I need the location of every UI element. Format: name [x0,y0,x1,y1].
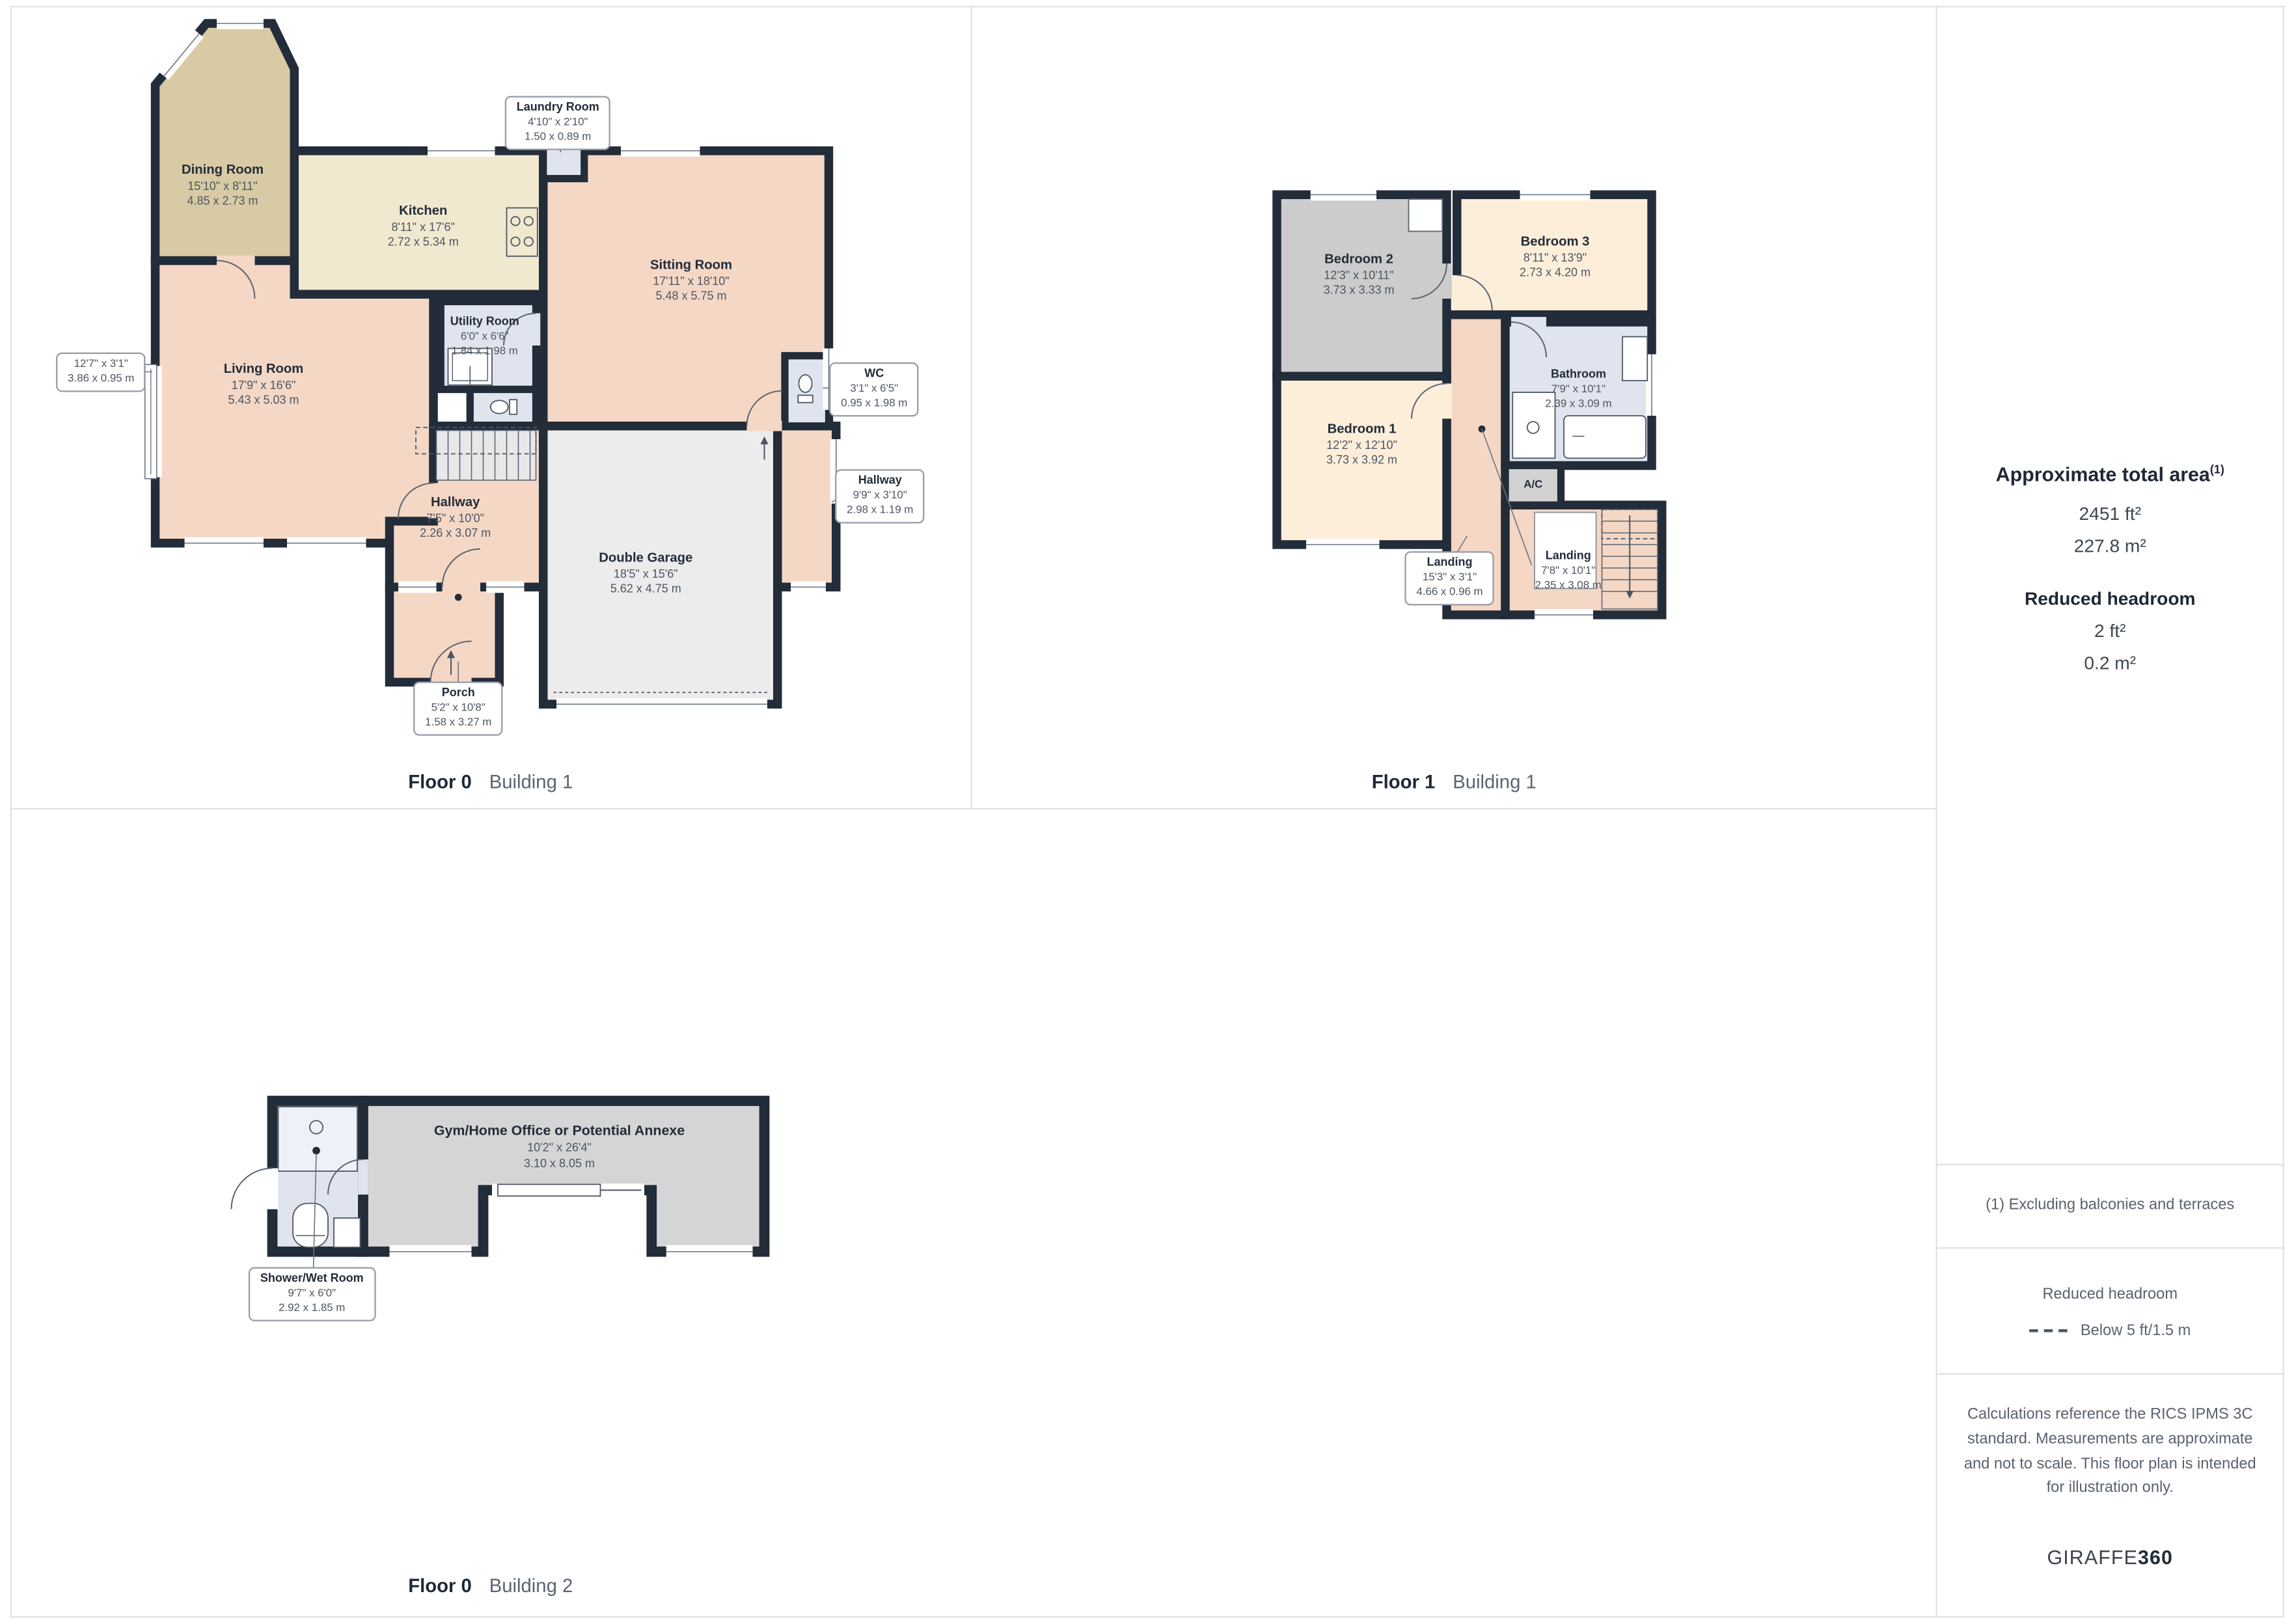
caption-floor0-building1: Floor 0Building 1 [408,771,573,793]
toilet-icon-wc [798,375,813,403]
callout-landing: Landing 15'3" x 3'1" 4.66 x 0.96 m [1404,551,1494,605]
callout-bay-dimensions: 12'7" x 3'1" 3.86 x 0.95 m [56,353,146,392]
room-label-sitting-room: Sitting Room 17'11" x 18'10" 5.48 x 5.75… [650,257,732,304]
room-label-bathroom: Bathroom 7'9" x 10'1" 2.39 x 3.09 m [1545,368,1611,411]
sliding-door-gym [492,1184,644,1196]
disclaimer-text: Calculations reference the RICS IPMS 3C … [1961,1403,2260,1501]
stairs-icon [437,431,536,481]
cooktop-icon [507,208,538,256]
legend-title: Reduced headroom [2042,1286,2178,1303]
room-label-ac: A/C [1524,478,1542,492]
room-label-gym: Gym/Home Office or Potential Annexe 10'2… [434,1124,685,1172]
reduced-headroom-ft: 2 ft² [2094,621,2125,642]
callout-wc: WC 3'1" x 6'5" 0.95 x 1.98 m [829,362,919,416]
callout-porch: Porch 5'2" x 10'8" 1.58 x 3.27 m [413,681,503,735]
caption-floor1-building1: Floor 1Building 1 [1372,771,1537,793]
panel-divider-vertical [971,6,972,808]
dashed-line-legend-swatch [2029,1329,2068,1333]
room-label-dining-room: Dining Room 15'10" x 8'11" 4.85 x 2.73 m [182,162,264,210]
footnote-text: (1) Excluding balconies and terraces [1986,1196,2234,1213]
bathtub-icon [1564,416,1646,458]
reduced-headroom-m: 0.2 m² [2084,653,2136,674]
door-entry-exterior [232,1169,273,1210]
callout-laundry-room: Laundry Room 4'10" x 2'10" 1.50 x 0.89 m [505,96,611,150]
room-label-landing: Landing 7'8" x 10'1" 2.35 x 3.08 m [1535,549,1602,593]
room-label-living-room: Living Room 17'9" x 16'6" 5.43 x 5.03 m [224,361,304,409]
caption-floor0-building2: Floor 0Building 2 [408,1575,573,1597]
toilet-icon [293,1204,328,1248]
reduced-headroom-title: Reduced headroom [2025,589,2196,610]
door-pivot-dot [455,594,462,601]
room-label-bedroom1: Bedroom 1 12'2" x 12'10" 3.73 x 3.92 m [1326,421,1397,468]
total-area-ft: 2451 ft² [2079,504,2141,524]
room-label-kitchen: Kitchen 8'11" x 17'6" 2.72 x 5.34 m [388,203,459,250]
room-label-bedroom2: Bedroom 2 12'3" x 10'11" 3.73 x 3.33 m [1323,251,1394,299]
room-porch-shape [390,587,500,682]
sidebar-section-divider-2 [1936,1247,2283,1249]
room-label-bedroom3: Bedroom 3 8'11" x 13'9" 2.73 x 4.20 m [1520,234,1591,281]
sidebar-section-divider-1 [1936,1164,2283,1165]
total-area-m: 227.8 m² [2074,536,2146,557]
window-living-bay [145,364,157,479]
sink-icon [334,1218,361,1247]
panel-divider-horizontal [10,808,1937,809]
giraffe360-logo: GIRAFFE360 [2047,1547,2173,1569]
room-hallway2-shape [778,426,836,588]
toilet-icon [491,399,517,414]
closet-shape [1409,199,1443,232]
floorplan-floor0-building2 [212,1083,791,1288]
callout-hallway2: Hallway 9'9" x 3'10" 2.98 x 1.19 m [835,469,925,523]
total-area-title: Approximate total area(1) [1996,463,2224,486]
page: Dining Room 15'10" x 8'11" 4.85 x 2.73 m… [0,0,2296,1623]
callout-shower-wet-room: Shower/Wet Room 9'7" x 6'0" 2.92 x 1.85 … [249,1267,376,1321]
room-label-hallway: Hallway 7'5" x 10'0" 2.26 x 3.07 m [420,494,491,542]
sidebar-divider [1936,6,1937,1616]
legend-label: Below 5 ft/1.5 m [2081,1322,2191,1340]
sidebar-section-divider-3 [1936,1374,2283,1375]
footnote-marker: (1) [2210,463,2224,476]
shower-icon [279,1107,358,1171]
sink-icon [1622,337,1647,381]
floorplan-document: Dining Room 15'10" x 8'11" 4.85 x 2.73 m… [0,0,2296,1624]
room-label-double-garage: Double Garage 18'5" x 15'6" 5.62 x 4.75 … [599,550,692,597]
legend-row: Below 5 ft/1.5 m [2029,1322,2191,1340]
room-label-utility-room: Utility Room 6'0" x 6'6" 1.84 x 1.98 m [450,315,519,359]
